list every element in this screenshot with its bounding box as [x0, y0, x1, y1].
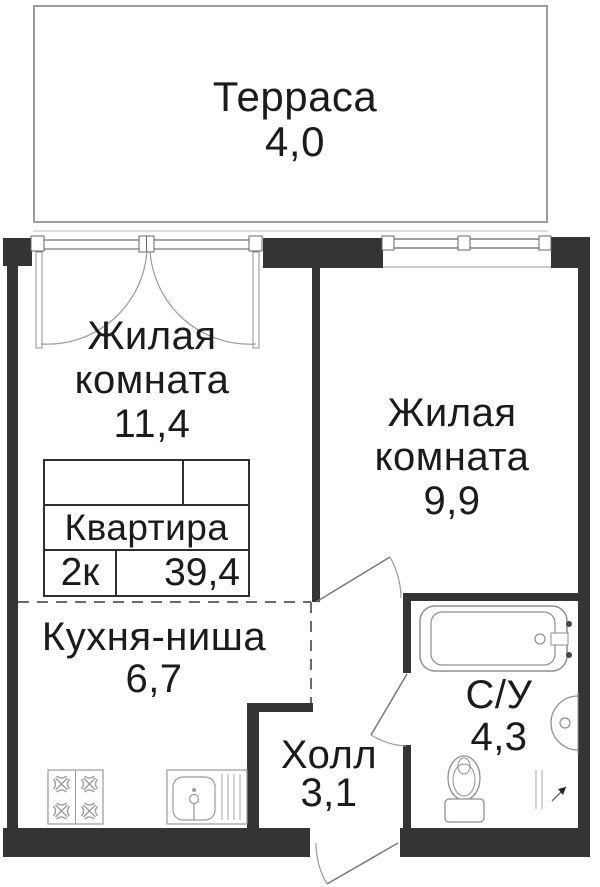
room-name: Холл [281, 736, 377, 774]
bathroom-label: С/У 4,3 [466, 674, 533, 758]
room-name: Кухня-ниша [42, 616, 266, 658]
room-area-value: 9,9 [375, 479, 530, 523]
window-right-room [382, 236, 551, 267]
room-name: Жилая [375, 391, 530, 435]
living-room-1-label: Жилая комната 11,4 [75, 314, 230, 446]
terrace-name: Терраса [213, 74, 378, 119]
summary-title: Квартира [65, 507, 229, 549]
hall-label: Холл 3,1 [281, 736, 377, 812]
right-room-door [316, 557, 401, 602]
room-name-2: комната [375, 435, 530, 479]
entrance-door [316, 843, 398, 884]
kitchen-sink-icon [167, 770, 247, 824]
summary-empty-cell-left [45, 461, 182, 504]
drain-arrow-icon [536, 770, 566, 809]
room-area-value: 6,7 [42, 658, 266, 700]
room-name-2: комната [75, 358, 230, 402]
apartment-summary-table: Квартира 2к 39,4 [43, 459, 250, 597]
rooms-count: 2к [61, 551, 100, 595]
bathtub-icon [420, 606, 572, 671]
summary-values-row: 2к 39,4 [45, 549, 248, 595]
floor-plan: Квартира 2к 39,4 Терраса 4,0 Жилая комна… [0, 0, 600, 887]
total-area-cell: 39,4 [115, 551, 248, 595]
room-name: С/У [466, 674, 533, 716]
room-area-value: 4,3 [466, 716, 533, 758]
stove-icon [48, 770, 103, 824]
kitchen-niche-label: Кухня-ниша 6,7 [42, 616, 266, 700]
room-name: Жилая [75, 314, 230, 358]
total-area: 39,4 [164, 551, 240, 595]
washbasin-icon [551, 692, 578, 754]
room-area-value: 11,4 [75, 402, 230, 446]
summary-empty-cell-right [182, 461, 248, 504]
summary-row-empty [45, 461, 248, 504]
terrace-label: Терраса 4,0 [213, 74, 378, 164]
summary-title-cell: Квартира [45, 504, 248, 549]
terrace-area-value: 4,0 [213, 119, 378, 164]
room-area-value: 3,1 [281, 774, 377, 812]
toilet-icon [445, 756, 484, 822]
rooms-count-cell: 2к [45, 551, 115, 595]
living-room-2-label: Жилая комната 9,9 [375, 391, 530, 523]
